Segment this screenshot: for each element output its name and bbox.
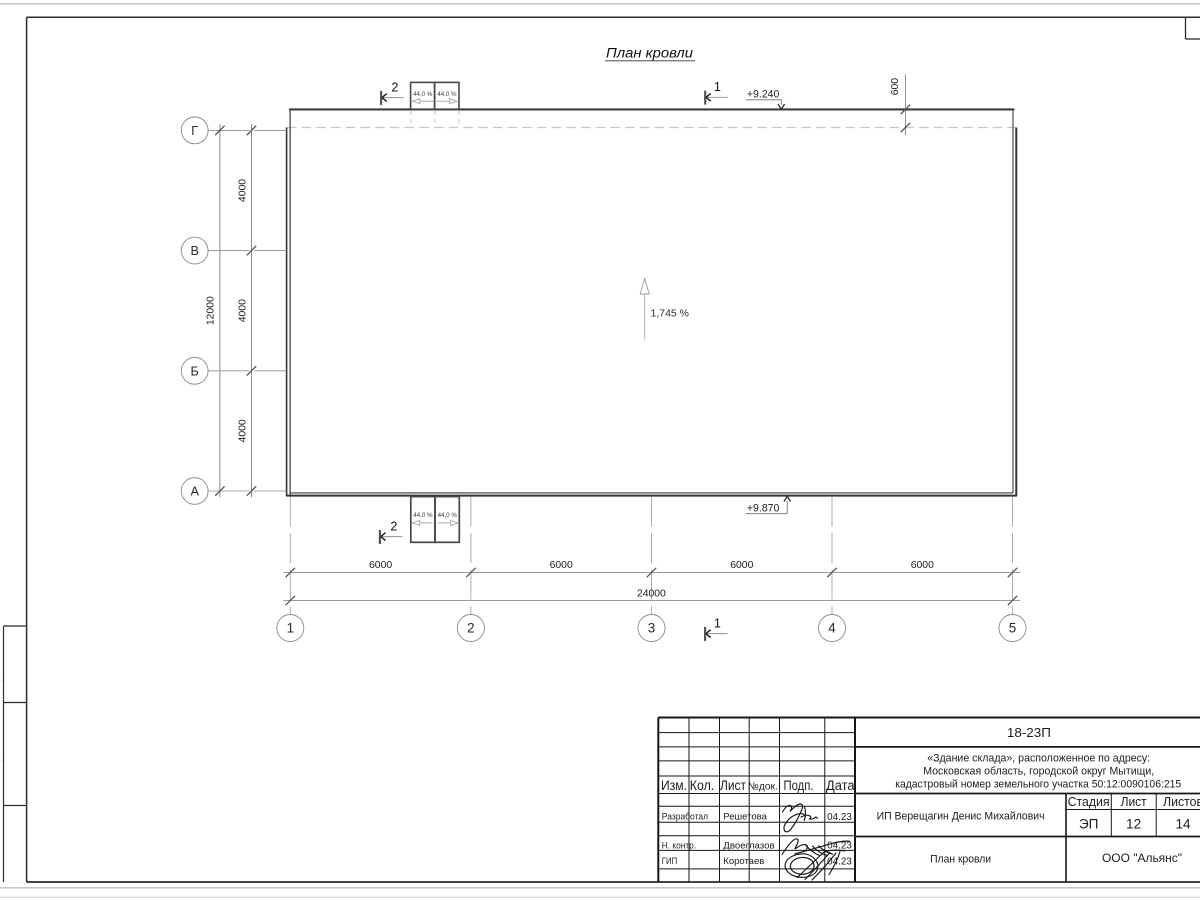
svg-text:14: 14	[1175, 816, 1191, 831]
svg-text:1: 1	[287, 621, 294, 636]
svg-text:ООО "Альянс": ООО "Альянс"	[1102, 851, 1182, 865]
svg-text:2: 2	[390, 519, 397, 533]
svg-text:600: 600	[890, 78, 901, 96]
svg-text:«Здание склада», расположенное: «Здание склада», расположенное по адресу…	[927, 752, 1150, 764]
svg-text:44,0 %: 44,0 %	[413, 91, 433, 98]
svg-text:4: 4	[828, 621, 836, 636]
svg-text:+9.870: +9.870	[747, 502, 780, 514]
svg-text:.: .	[0, 759, 4, 761]
svg-text:Г: Г	[191, 124, 198, 138]
svg-text:44,0 %: 44,0 %	[437, 91, 457, 98]
svg-text:04.23: 04.23	[827, 856, 852, 867]
svg-text:24000: 24000	[637, 589, 666, 600]
svg-text:.: .	[0, 679, 4, 681]
svg-text:4000: 4000	[237, 179, 248, 202]
svg-text:44,0 %: 44,0 %	[438, 512, 458, 519]
svg-text:ГИП: ГИП	[662, 856, 677, 867]
svg-text:Московская область, городской: Московская область, городской округ Мыти…	[923, 765, 1154, 777]
svg-text:4000: 4000	[237, 299, 248, 322]
svg-text:ИП Верещагин Денис Михайлович: ИП Верещагин Денис Михайлович	[877, 810, 1045, 822]
svg-text:Коротаев: Коротаев	[723, 856, 764, 867]
svg-text:В: В	[190, 244, 198, 258]
svg-text:Изм.: Изм.	[661, 778, 687, 793]
svg-text:Подп.: Подп.	[784, 778, 814, 793]
svg-text:12000: 12000	[206, 296, 217, 325]
svg-text:Решетова: Решетова	[723, 812, 767, 823]
svg-text:+9.240: +9.240	[747, 88, 780, 100]
svg-text:Разработал: Разработал	[662, 812, 708, 823]
svg-text:Н. контр.: Н. контр.	[662, 840, 696, 851]
svg-text:1: 1	[714, 616, 721, 630]
svg-text:ЭП: ЭП	[1079, 816, 1099, 831]
svg-text:2: 2	[391, 80, 398, 94]
svg-text:1,745 %: 1,745 %	[651, 309, 690, 320]
svg-text:Дата: Дата	[826, 778, 855, 793]
svg-text:А: А	[190, 485, 199, 499]
svg-text:Двоеглазов: Двоеглазов	[723, 841, 774, 852]
svg-text:Кол.: Кол.	[690, 778, 715, 793]
svg-text:18-23П: 18-23П	[1007, 725, 1051, 740]
svg-text:Листов: Листов	[1163, 794, 1200, 809]
svg-text:Лист: Лист	[1121, 794, 1147, 809]
svg-text:Лист: Лист	[720, 778, 746, 793]
svg-text:4000: 4000	[237, 419, 248, 442]
svg-text:6000: 6000	[730, 560, 753, 571]
svg-text:кадастровый номер земельного у: кадастровый номер земельного участка 50:…	[895, 778, 1181, 790]
svg-text:04.23: 04.23	[827, 812, 852, 823]
svg-text:5: 5	[1009, 621, 1016, 636]
svg-text:6000: 6000	[369, 560, 392, 571]
svg-text:6000: 6000	[550, 560, 573, 571]
svg-text:44,0 %: 44,0 %	[413, 512, 433, 519]
svg-text:План кровли: План кровли	[930, 854, 991, 866]
svg-text:Б: Б	[191, 364, 199, 378]
svg-text:1: 1	[714, 80, 721, 94]
svg-text:12: 12	[1126, 816, 1141, 831]
svg-text:6000: 6000	[911, 560, 934, 571]
svg-text:Стадия: Стадия	[1068, 794, 1110, 809]
svg-text:2: 2	[467, 621, 474, 636]
svg-text:3: 3	[648, 621, 655, 636]
svg-text:№док.: №док.	[748, 782, 778, 793]
svg-text:План кровли: План кровли	[606, 45, 694, 60]
